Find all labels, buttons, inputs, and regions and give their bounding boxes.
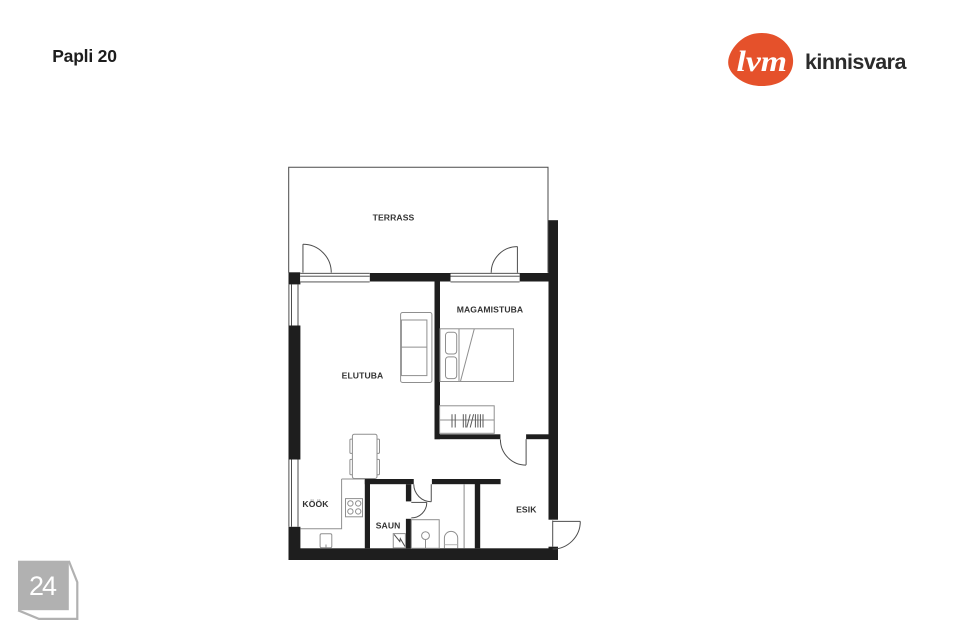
svg-text:TERRASS: TERRASS <box>373 213 415 223</box>
svg-text:SAUN: SAUN <box>376 520 401 530</box>
svg-text:ESIK: ESIK <box>516 504 537 514</box>
svg-text:lvm: lvm <box>737 45 788 78</box>
svg-text:24: 24 <box>29 571 57 601</box>
svg-text:MAGAMISTUBA: MAGAMISTUBA <box>457 305 524 315</box>
svg-text:KÖÖK: KÖÖK <box>302 499 329 509</box>
svg-text:ELUTUBA: ELUTUBA <box>342 371 384 381</box>
